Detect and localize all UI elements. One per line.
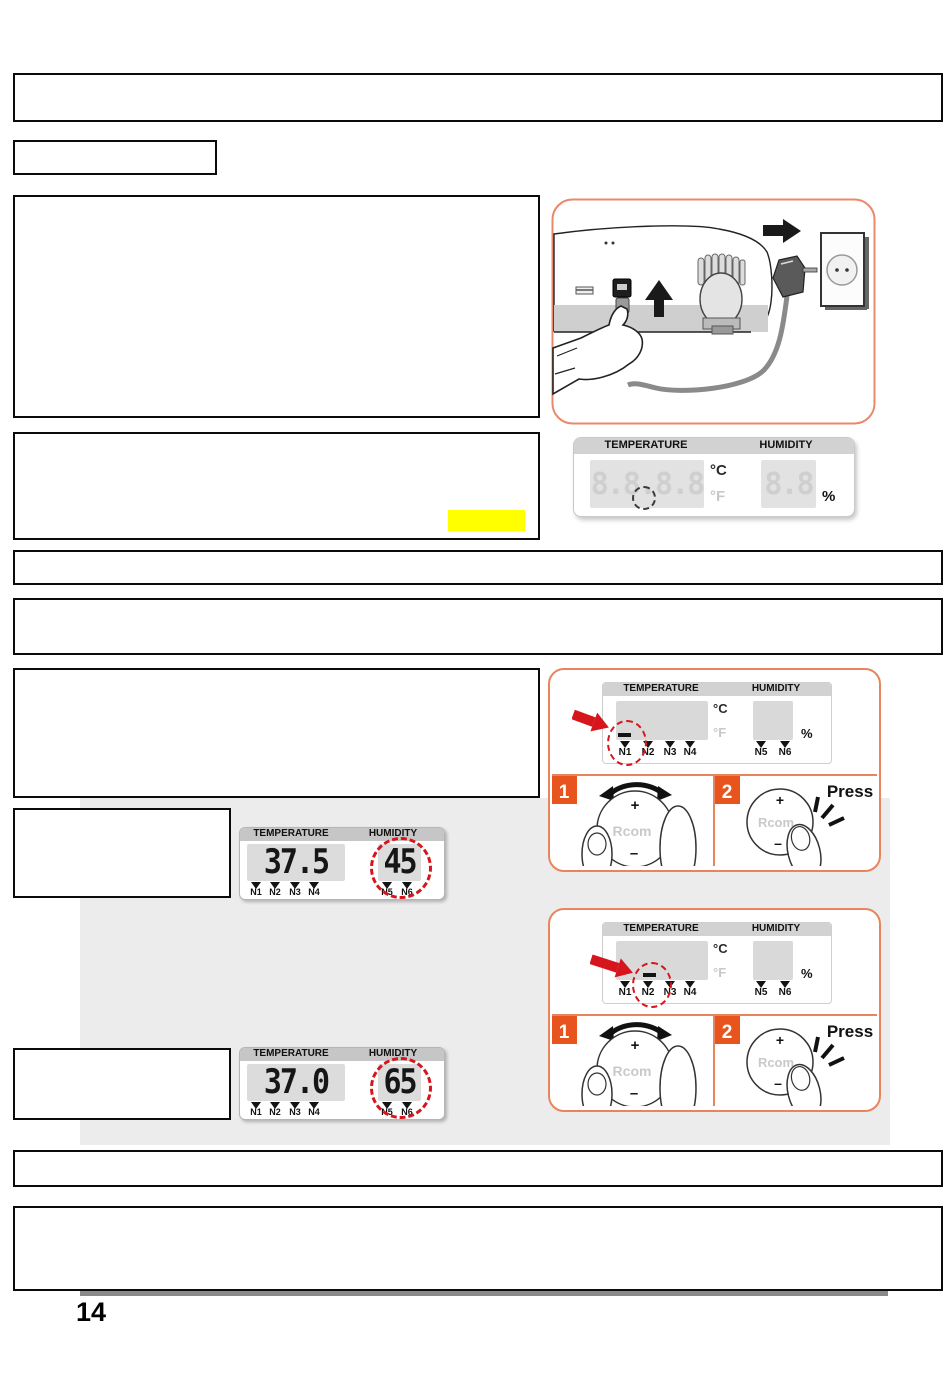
manual-page: TEMPERATURE HUMIDITY 8.8.8.8 °C °F 8.8 %… <box>0 0 950 1397</box>
instruction-text-box-3 <box>13 668 540 798</box>
humidity-label: HUMIDITY <box>752 923 800 934</box>
section-label-box <box>13 140 217 175</box>
setting-panel-n2: TEMPERATURE HUMIDITY °C °F % N1 N2 N3 N4… <box>548 908 881 1112</box>
fahrenheit-unit: °F <box>713 965 726 980</box>
panel2-display-header: TEMPERATURE HUMIDITY <box>603 923 831 936</box>
node-label: N1 <box>250 1107 262 1117</box>
knob-plus: + <box>776 1032 784 1048</box>
fahrenheit-unit: °F <box>713 725 726 740</box>
yellow-highlight <box>448 510 525 531</box>
temperature-label: TEMPERATURE <box>623 683 698 694</box>
egg-icon <box>700 273 742 325</box>
node-label: N4 <box>684 747 697 758</box>
knob-minus: – <box>630 1085 638 1102</box>
node-label: N4 <box>308 887 320 897</box>
celsius-unit: °C <box>713 701 728 716</box>
note-box-4 <box>13 1206 943 1291</box>
page-number: 14 <box>76 1297 106 1328</box>
note-box-2 <box>13 598 943 655</box>
knob-plus: + <box>776 792 784 808</box>
humidity-highlight-ellipse <box>370 837 432 899</box>
temperature-label: TEMPERATURE <box>623 923 698 934</box>
humidity-label: HUMIDITY <box>752 683 800 694</box>
temperature-lcd-area: 37.5 <box>247 844 345 881</box>
footer-divider <box>80 1291 888 1296</box>
lcd-header: TEMPERATURE HUMIDITY <box>574 438 854 454</box>
temperature-value: 37.5 <box>264 843 328 882</box>
node-label: N6 <box>779 747 792 758</box>
knob-minus: – <box>774 835 782 851</box>
note-box-1 <box>13 550 943 585</box>
node-label: N3 <box>664 747 677 758</box>
humidity-lcd-area <box>753 701 793 740</box>
node-label: N4 <box>308 1107 320 1117</box>
fahrenheit-unit: °F <box>710 488 725 505</box>
knob-brand-logo: Rcom <box>758 1055 794 1070</box>
percent-unit: % <box>801 966 813 981</box>
setting-panel-n1: TEMPERATURE HUMIDITY °C °F % N1 N2 N3 N4… <box>548 668 881 872</box>
step2-number: 2 <box>722 1022 733 1043</box>
humidity-label: HUMIDITY <box>759 439 812 451</box>
caption-box-hum-set <box>13 1048 231 1120</box>
node-label: N1 <box>619 987 632 998</box>
instruction-text-box-2 <box>13 432 540 540</box>
power-connection-drawing <box>551 198 876 425</box>
knob-brand-logo: Rcom <box>613 1063 652 1079</box>
panel1-steps: 1 2 + – Rcom + – Rcom <box>552 774 877 866</box>
wall-socket-icon <box>821 233 869 310</box>
power-connection-illustration <box>551 198 876 425</box>
notice-box-top <box>13 73 943 122</box>
n2-highlight-ellipse <box>632 962 672 1008</box>
n1-highlight-ellipse <box>607 720 647 766</box>
temperature-label: TEMPERATURE <box>253 1048 328 1059</box>
lcd-readout-hum-65: TEMPERATURE HUMIDITY 37.0 65 N1 N2 N3 N4… <box>239 1047 445 1120</box>
percent-unit: % <box>801 726 813 741</box>
knob-minus: – <box>774 1075 782 1091</box>
press-impact-lines <box>815 797 844 825</box>
node-label: N6 <box>779 987 792 998</box>
knob-brand-logo: Rcom <box>613 823 652 839</box>
step1-number: 1 <box>559 1022 570 1043</box>
knob-plus: + <box>631 1037 640 1054</box>
node-label: N5 <box>755 987 768 998</box>
percent-unit: % <box>822 488 835 505</box>
celsius-unit: °C <box>710 462 727 479</box>
temperature-label: TEMPERATURE <box>253 828 328 839</box>
node-label: N2 <box>269 1107 281 1117</box>
humidity-highlight-ellipse <box>370 1057 432 1119</box>
panel2-steps: 1 2 + – Rcom + – Rcom Press <box>552 1014 877 1106</box>
instruction-text-box-1 <box>13 195 540 418</box>
node-label: N5 <box>755 747 768 758</box>
red-arrow-icon <box>590 952 634 980</box>
node-label: N2 <box>269 887 281 897</box>
knob-brand-logo: Rcom <box>758 815 794 830</box>
panel1-display-header: TEMPERATURE HUMIDITY <box>603 683 831 696</box>
press-label: Press <box>827 782 873 801</box>
decimal-point-highlight-circle <box>632 486 656 510</box>
celsius-unit: °C <box>713 941 728 956</box>
press-label: Press <box>827 1022 873 1041</box>
lcd-display-blank: TEMPERATURE HUMIDITY 8.8.8.8 °C °F 8.8 % <box>573 437 855 517</box>
humidity-segments: 8.8 <box>764 467 812 502</box>
lcd-readout-temp-45: TEMPERATURE HUMIDITY 37.5 45 N1 N2 N3 N4… <box>239 827 445 900</box>
caption-box-temp-set <box>13 808 231 898</box>
note-box-3 <box>13 1150 943 1187</box>
humidity-lcd-area: 8.8 <box>761 460 816 508</box>
node-label: N3 <box>289 887 301 897</box>
temperature-label: TEMPERATURE <box>605 439 688 451</box>
node-label: N3 <box>289 1107 301 1117</box>
node-label: N1 <box>250 887 262 897</box>
step2-number: 2 <box>722 782 733 803</box>
humidity-lcd-area <box>753 941 793 980</box>
step1-number: 1 <box>559 782 570 803</box>
temperature-value: 37.0 <box>264 1063 328 1102</box>
red-arrow-icon <box>572 707 610 735</box>
press-impact-lines <box>815 1037 844 1065</box>
temperature-lcd-area: 37.0 <box>247 1064 345 1101</box>
knob-plus: + <box>631 797 640 814</box>
node-label: N4 <box>684 987 697 998</box>
knob-minus: – <box>630 845 638 862</box>
